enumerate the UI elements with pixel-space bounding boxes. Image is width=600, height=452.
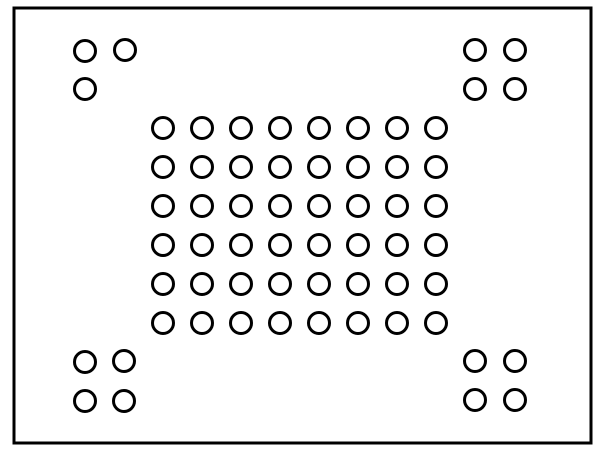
- solder-ball-center: [309, 313, 330, 334]
- solder-ball-bottom-left: [75, 352, 96, 373]
- solder-ball-center: [231, 274, 252, 295]
- solder-ball-center: [387, 157, 408, 178]
- solder-ball-center: [270, 313, 291, 334]
- solder-ball-top-left: [75, 41, 96, 62]
- solder-ball-center: [231, 235, 252, 256]
- package-outline: [14, 8, 591, 443]
- solder-ball-center: [192, 118, 213, 139]
- bga-ballout-svg: [0, 0, 600, 452]
- solder-ball-center: [348, 235, 369, 256]
- solder-ball-bottom-right: [505, 351, 526, 372]
- solder-ball-center: [192, 157, 213, 178]
- solder-ball-center: [387, 274, 408, 295]
- solder-ball-center: [426, 118, 447, 139]
- solder-ball-center: [426, 313, 447, 334]
- solder-ball-center: [309, 274, 330, 295]
- solder-ball-center: [426, 235, 447, 256]
- solder-ball-center: [192, 196, 213, 217]
- solder-ball-bottom-left: [114, 391, 135, 412]
- solder-ball-center: [426, 157, 447, 178]
- solder-ball-top-right: [465, 40, 486, 61]
- solder-ball-center: [387, 196, 408, 217]
- solder-ball-bottom-left: [114, 351, 135, 372]
- solder-ball-center: [426, 196, 447, 217]
- solder-ball-center: [348, 313, 369, 334]
- solder-ball-center: [387, 313, 408, 334]
- solder-ball-top-left: [75, 79, 96, 100]
- solder-ball-bottom-right: [465, 390, 486, 411]
- solder-ball-bottom-right: [465, 351, 486, 372]
- solder-ball-center: [192, 274, 213, 295]
- solder-ball-center: [153, 235, 174, 256]
- solder-ball-center: [270, 196, 291, 217]
- solder-ball-center: [348, 274, 369, 295]
- solder-ball-center: [348, 157, 369, 178]
- solder-ball-center: [153, 313, 174, 334]
- solder-ball-center: [231, 196, 252, 217]
- solder-ball-center: [309, 235, 330, 256]
- solder-ball-center: [348, 118, 369, 139]
- solder-ball-center: [231, 118, 252, 139]
- solder-ball-top-right: [505, 79, 526, 100]
- solder-ball-center: [270, 235, 291, 256]
- solder-ball-center: [270, 118, 291, 139]
- solder-ball-center: [270, 157, 291, 178]
- solder-ball-top-left: [115, 40, 136, 61]
- solder-ball-center: [270, 274, 291, 295]
- solder-ball-center: [387, 118, 408, 139]
- solder-ball-center: [153, 274, 174, 295]
- solder-ball-center: [387, 235, 408, 256]
- solder-ball-center: [309, 118, 330, 139]
- solder-ball-bottom-left: [75, 391, 96, 412]
- solder-ball-bottom-right: [505, 390, 526, 411]
- solder-ball-top-right: [465, 79, 486, 100]
- solder-ball-center: [231, 157, 252, 178]
- solder-ball-center: [153, 157, 174, 178]
- solder-ball-center: [309, 196, 330, 217]
- solder-ball-center: [153, 196, 174, 217]
- solder-ball-top-right: [505, 40, 526, 61]
- solder-ball-center: [309, 157, 330, 178]
- solder-ball-center: [192, 313, 213, 334]
- solder-ball-center: [231, 313, 252, 334]
- solder-ball-center: [426, 274, 447, 295]
- solder-ball-center: [153, 118, 174, 139]
- bga-ballout-figure: [0, 0, 600, 452]
- solder-ball-center: [192, 235, 213, 256]
- solder-ball-center: [348, 196, 369, 217]
